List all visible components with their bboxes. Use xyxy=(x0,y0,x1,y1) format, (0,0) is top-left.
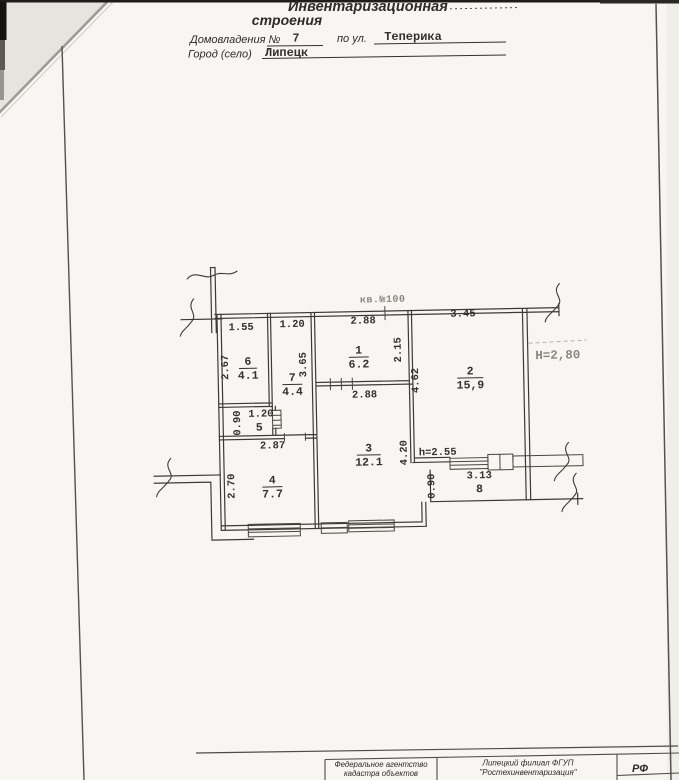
room-labels: 1 6.2 2 15,9 3 12.1 4 7.7 5 6 xyxy=(237,342,486,502)
door-hatch-room5 xyxy=(272,410,281,428)
dim-room2-width: 3.45 xyxy=(450,308,475,321)
dim-room1-bottom: 2.88 xyxy=(352,389,377,402)
room-2-fraction-line xyxy=(457,378,483,379)
room-6-area: 4.1 xyxy=(238,370,259,383)
floor-plan: кв.№100 H=2,80 h=2.55 1.55 1.20 2.88 3.4… xyxy=(150,260,590,541)
room-7-area: 4.4 xyxy=(282,386,303,399)
doc-title-line2: строения xyxy=(252,12,322,28)
break-mark-left-wall xyxy=(180,299,195,336)
street-label: по ул. xyxy=(337,33,367,45)
dim-room4-height: 2.70 xyxy=(226,473,239,498)
room-4-area: 7.7 xyxy=(262,488,283,501)
break-mark-porch xyxy=(156,458,172,496)
balcony-window-panes xyxy=(450,461,488,465)
room-4-number: 4 xyxy=(269,474,276,487)
room-1-label: 1 6.2 xyxy=(348,344,369,371)
window-room3-a-pane xyxy=(321,527,347,528)
dim-room6-width: 1.55 xyxy=(228,322,253,335)
footer: Федеральное агентство кадастра объектов … xyxy=(196,746,679,780)
porch-outline xyxy=(154,474,253,541)
scan-root: Инвентаризационная строения Домовладения… xyxy=(0,0,679,780)
window-room3-b xyxy=(349,520,395,532)
footer-branch-line2: "Ростехинвентаризация" xyxy=(479,768,577,777)
footer-rule xyxy=(196,746,678,753)
dim-room8-height: 0.90 xyxy=(426,473,439,498)
footer-branch-line1: Липецкий филиал ФГУП xyxy=(481,759,573,768)
balcony-rail xyxy=(513,455,583,467)
title-dotted-leader xyxy=(440,8,520,10)
dim-room7-width: 1.20 xyxy=(279,319,304,332)
household-number-value: 7 xyxy=(293,33,300,46)
room-4-label: 4 7.7 xyxy=(262,474,283,501)
dim-room4-width: 2.87 xyxy=(260,440,285,453)
room-6-number: 6 xyxy=(244,356,251,369)
room-3-label: 3 12.1 xyxy=(355,442,383,470)
room-7-number: 7 xyxy=(289,372,296,385)
dim-room3-height: 4.20 xyxy=(399,440,412,465)
break-mark-chimney xyxy=(187,271,237,279)
room-5-number: 5 xyxy=(256,422,263,435)
dim-room7-height: 3.65 xyxy=(298,352,311,377)
room-8-number: 8 xyxy=(476,483,483,496)
faded-dash-line xyxy=(529,340,587,343)
scan-top-right-edge xyxy=(600,0,679,4)
dim-room5-height: 0.90 xyxy=(232,410,245,435)
room-3-number: 3 xyxy=(365,442,372,455)
footer-agency-line1: Федеральное агентство xyxy=(334,760,428,769)
dim-room6-height: 2.67 xyxy=(220,355,233,380)
dim-room5-width: 1.20 xyxy=(248,408,273,421)
scan-left-edge-2 xyxy=(0,40,5,70)
balcony-structure xyxy=(430,453,584,508)
scan-left-edge-3 xyxy=(0,70,4,100)
plan-dimensions: 1.55 1.20 2.88 3.45 2.67 3.65 2.15 2.88 … xyxy=(219,308,492,503)
street-value: Теперика xyxy=(384,30,442,44)
room-1-area: 6.2 xyxy=(349,358,370,371)
dim-room2-height: 4.62 xyxy=(410,368,423,393)
apartment-number-label: кв.№100 xyxy=(360,295,406,307)
door-hatch-lines xyxy=(272,415,281,425)
city-label: Город (село) xyxy=(188,49,252,61)
balcony-outline xyxy=(430,467,583,507)
room-2-label: 2 15,9 xyxy=(456,365,484,393)
room-2-number: 2 xyxy=(467,365,474,378)
break-mark-top-right xyxy=(544,284,560,322)
dim-room1-height: 2.15 xyxy=(392,337,405,362)
footer-agency-line2: кадастра объектов xyxy=(344,769,418,778)
break-mark-rail xyxy=(554,442,570,480)
balcony-window xyxy=(450,458,488,470)
page-border-left xyxy=(62,46,84,780)
balcony-height-label: h=2.55 xyxy=(419,447,457,460)
dim-room1-width: 2.88 xyxy=(350,315,375,328)
household-number-label: Домовладения № xyxy=(188,34,281,46)
dim-room8-width: 3.13 xyxy=(467,470,492,483)
ceiling-height-label: H=2,80 xyxy=(535,348,580,363)
document-page: Инвентаризационная строения Домовладения… xyxy=(0,0,679,780)
footer-country-code: РФ xyxy=(632,763,648,775)
room-2-area: 15,9 xyxy=(456,379,484,393)
break-mark-balcony xyxy=(561,473,577,511)
scan-artifacts xyxy=(0,0,679,780)
room-1-number: 1 xyxy=(355,345,362,358)
scan-left-edge-1 xyxy=(0,2,7,40)
header: Инвентаризационная строения Домовладения… xyxy=(188,0,520,61)
room-6-label: 6 4.1 xyxy=(237,356,258,383)
room-3-area: 12.1 xyxy=(355,456,383,470)
